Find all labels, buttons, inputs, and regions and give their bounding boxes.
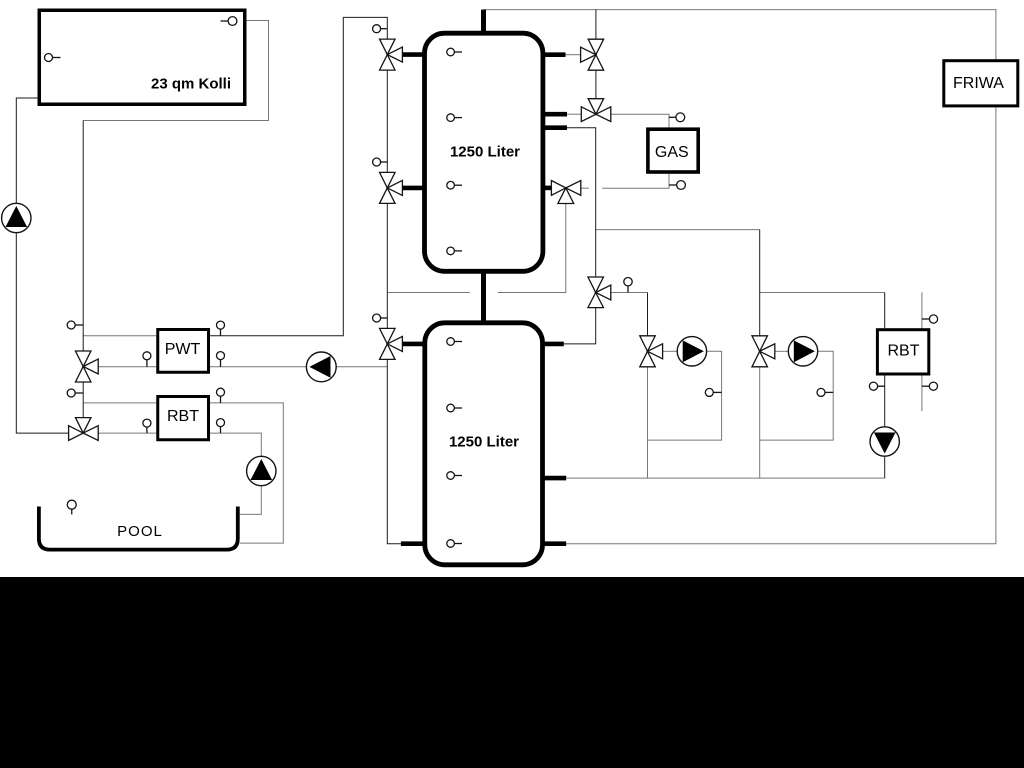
svg-text:1250 Liter: 1250 Liter <box>449 433 519 450</box>
svg-text:RBT: RBT <box>888 343 920 360</box>
svg-text:PWT: PWT <box>165 341 201 358</box>
svg-text:23 qm Kolli: 23 qm Kolli <box>151 75 231 92</box>
svg-text:RBT: RBT <box>167 408 199 425</box>
svg-text:POOL: POOL <box>117 523 163 540</box>
svg-text:1250 Liter: 1250 Liter <box>450 144 520 161</box>
svg-text:FRIWA: FRIWA <box>953 75 1004 92</box>
svg-text:GAS: GAS <box>655 144 689 161</box>
